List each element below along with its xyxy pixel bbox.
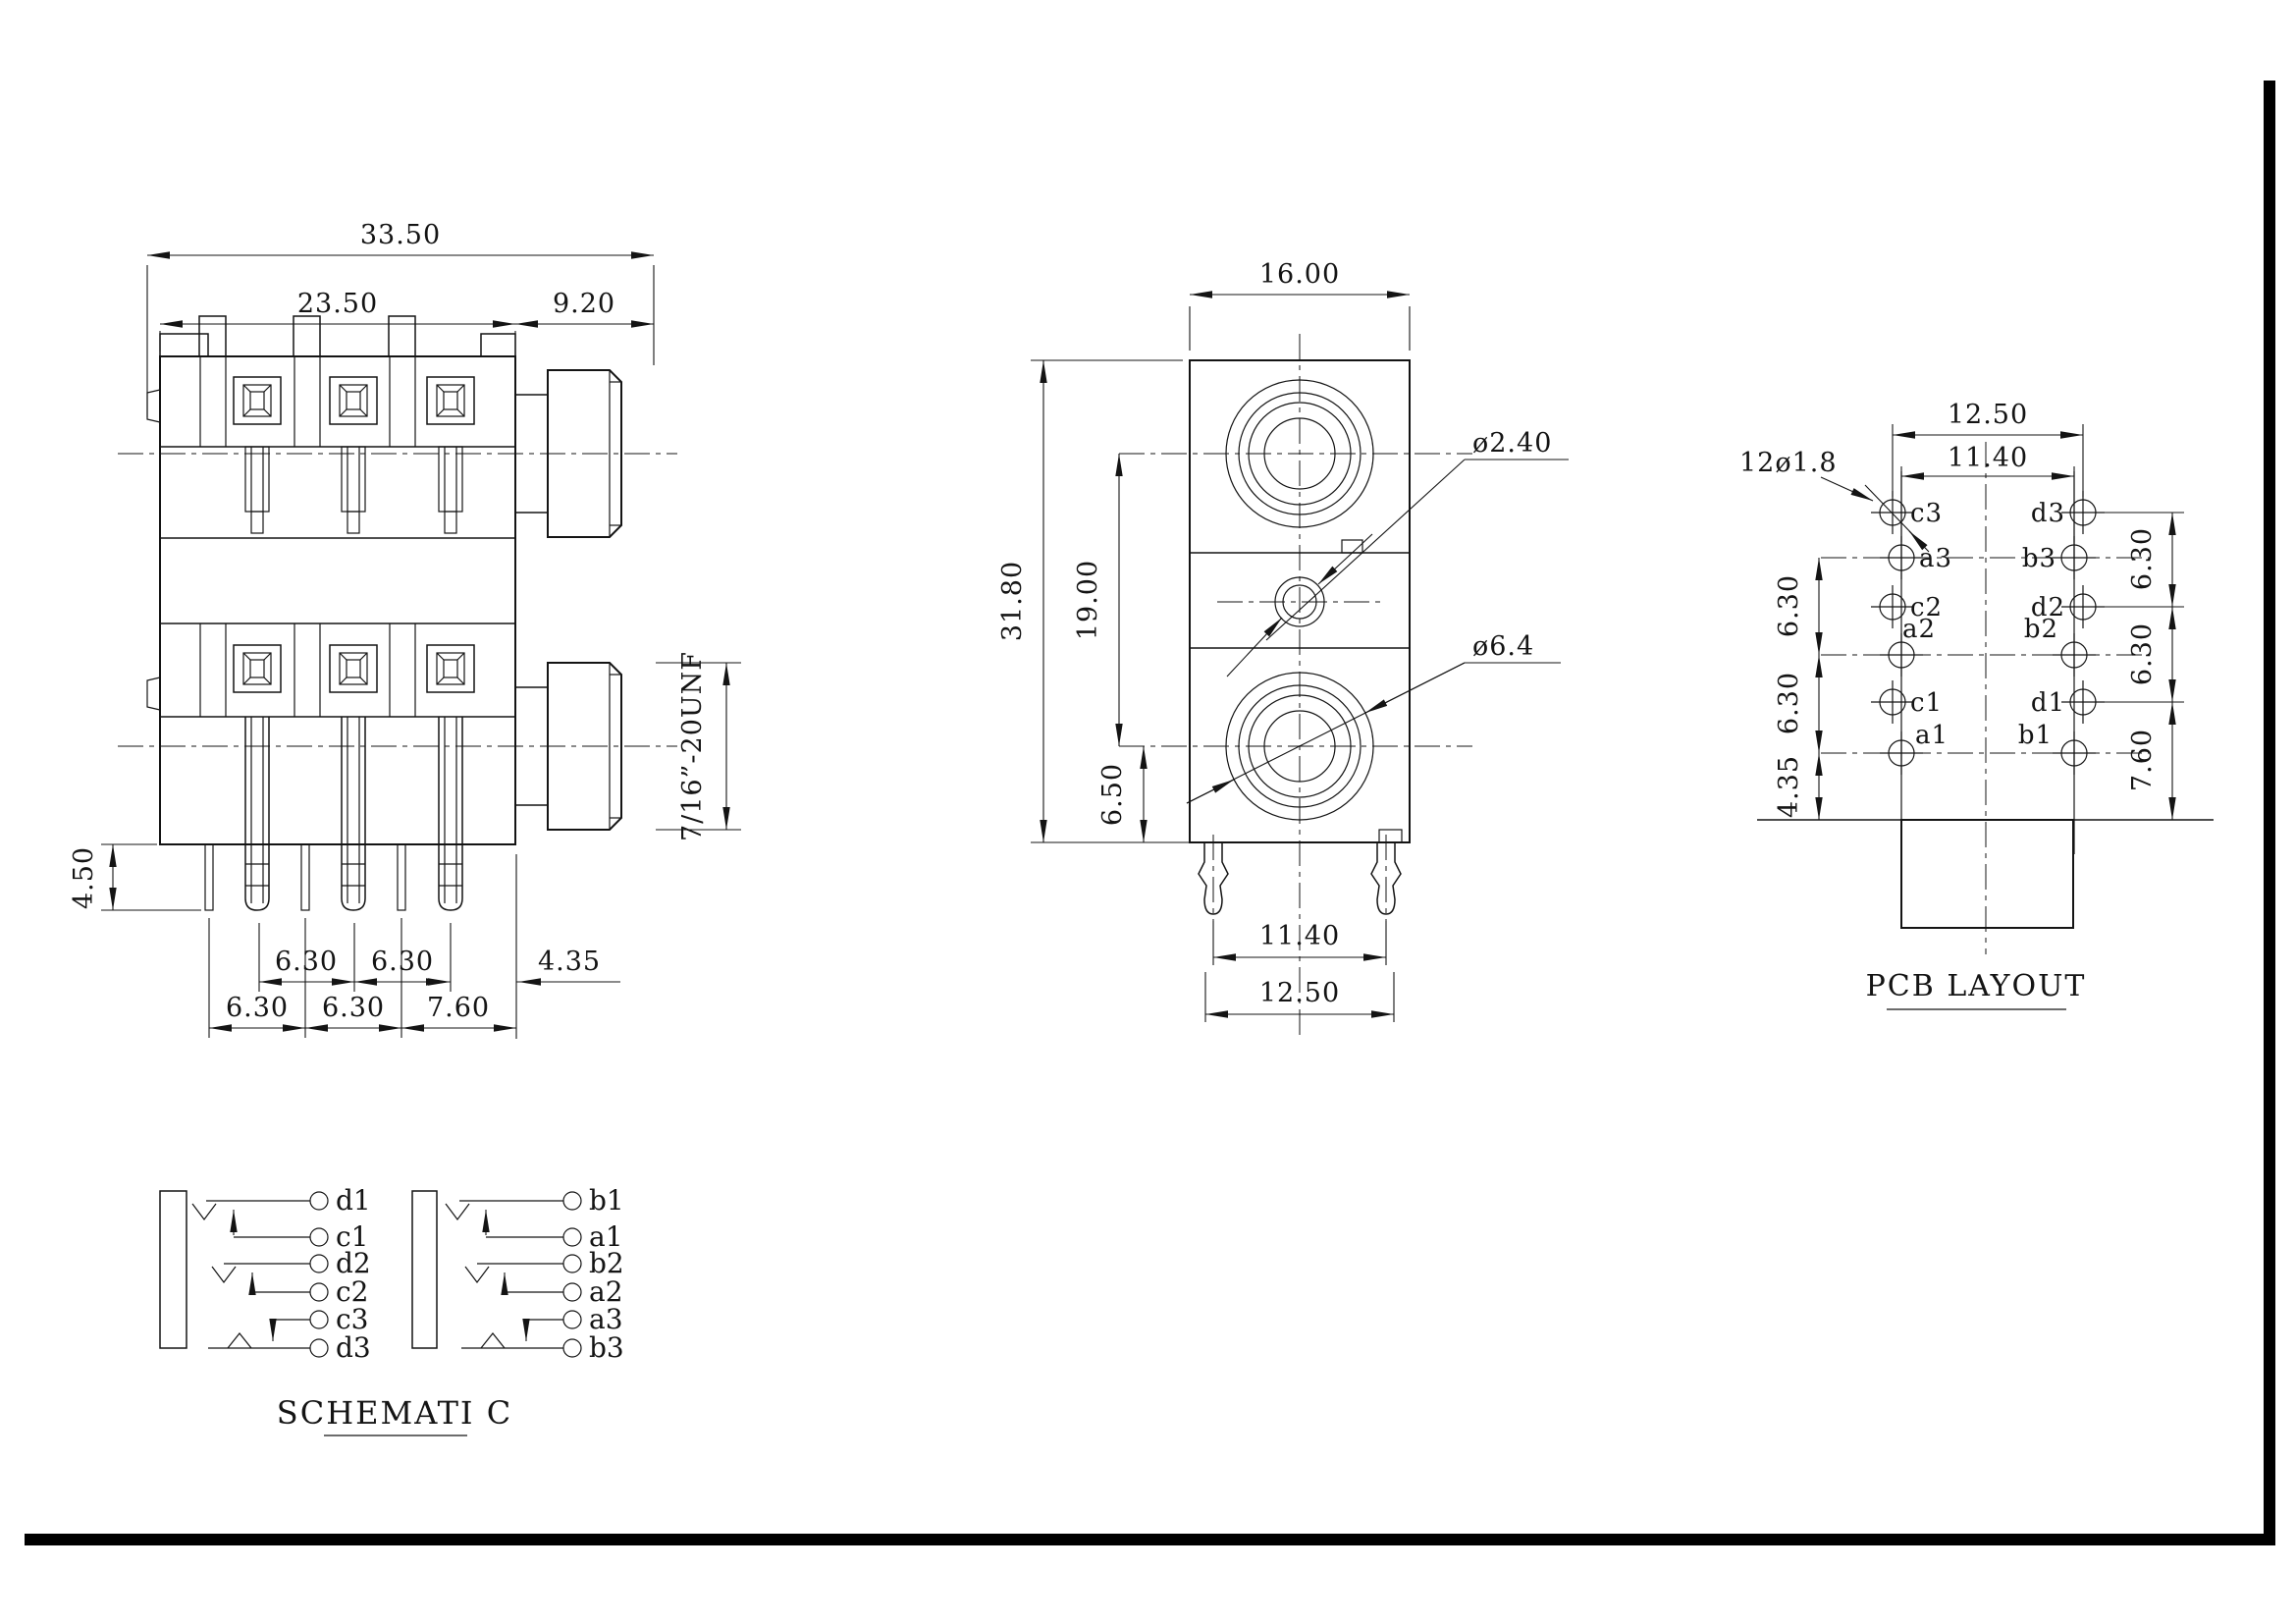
callout-hole-large: ø6.4: [1472, 631, 1534, 662]
pcb-layout-title: PCB LAYOUT: [1866, 969, 2087, 1003]
dim-leg-outer: 12.50: [1259, 978, 1340, 1008]
dim-front-height: 31.80: [997, 561, 1028, 641]
side-view-body: [118, 316, 677, 910]
dim-front-width: 16.00: [1259, 259, 1340, 290]
pad-label-b1: b1: [2018, 721, 2053, 750]
dim-pcb-left-pitch-b: 6.30: [1774, 672, 1804, 734]
dim-overall-width: 33.50: [360, 220, 441, 250]
dim-pcb-right-edge: 7.60: [2127, 729, 2158, 791]
schematic-pin-b1: b1: [589, 1184, 624, 1217]
pcb-title-block: PCB LAYOUT: [1866, 969, 2087, 1009]
dim-lower-center: 6.50: [1097, 763, 1128, 826]
pcb-pads: [1757, 442, 2214, 954]
dim-pcb-inner: 11.40: [1948, 443, 2028, 473]
pad-label-a3: a3: [1919, 544, 1952, 573]
schematic-pin-d1: d1: [336, 1184, 371, 1217]
side-view: 33.50 23.50 9.20 7/16”-20UNF 4.50: [69, 220, 741, 1039]
drawing-sheet: 33.50 23.50 9.20 7/16”-20UNF 4.50: [0, 0, 2296, 1624]
dim-pcb-left-pitch-a: 6.30: [1774, 574, 1804, 637]
dim-thread-spec: 7/16”-20UNF: [677, 651, 708, 841]
pad-label-a1: a1: [1915, 721, 1949, 750]
dim-row2-pitch-b: 6.30: [322, 993, 385, 1023]
engineering-drawing: 33.50 23.50 9.20 7/16”-20UNF 4.50: [0, 0, 2296, 1624]
front-view: 16.00 31.80 19.00 6.50 ø2.40 ø6.4: [997, 259, 1569, 1041]
dim-bushing-length: 9.20: [553, 289, 615, 319]
dim-row1-edge: 4.35: [538, 947, 601, 977]
schematic-left-jack: d1 c1 d2 c2 c3 d3: [160, 1184, 371, 1364]
dim-pin-length: 4.50: [69, 846, 99, 909]
dim-row1-pitch-b: 6.30: [371, 947, 434, 977]
callout-hole-small: ø2.40: [1472, 428, 1552, 459]
dim-jack-centers: 19.00: [1073, 560, 1103, 640]
front-view-dimensions: 16.00 31.80 19.00 6.50 ø2.40 ø6.4: [997, 259, 1569, 1022]
pad-label-d1: d1: [2031, 688, 2065, 718]
dim-pcb-left-edge: 4.35: [1774, 755, 1804, 818]
pad-label-b2: b2: [2024, 615, 2058, 644]
pad-label-d3: d3: [2031, 499, 2065, 528]
note-hole-count: 12ø1.8: [1739, 448, 1838, 478]
side-view-dimensions: 33.50 23.50 9.20 7/16”-20UNF 4.50: [69, 220, 741, 1039]
schematic-title: SCHEMATI C: [277, 1394, 512, 1432]
schematic-right-jack: b1 a1 b2 a2 a3 b3: [412, 1184, 624, 1364]
dim-leg-span: 11.40: [1259, 921, 1340, 951]
schematic-title-block: SCHEMATI C: [277, 1394, 512, 1435]
dim-pcb-outer: 12.50: [1948, 400, 2028, 430]
schematic-pin-b3: b3: [589, 1331, 624, 1364]
pad-label-a2: a2: [1902, 615, 1936, 644]
schematic-view: d1 c1 d2 c2 c3 d3 b1: [160, 1184, 624, 1435]
pad-label-b3: b3: [2022, 544, 2056, 573]
dim-row1-pitch-a: 6.30: [275, 947, 338, 977]
dim-pcb-right-pitch-b: 6.30: [2127, 623, 2158, 685]
pad-label-c1: c1: [1910, 688, 1943, 718]
dim-row2-edge: 7.60: [427, 993, 490, 1023]
dim-row2-pitch-a: 6.30: [226, 993, 289, 1023]
dim-body-width: 23.50: [297, 289, 378, 319]
pcb-pad-labels: c3 a3 c2 a2 c1 a1 d3 b3 d2 b2 d1 b1: [1902, 499, 2065, 750]
dim-pcb-right-pitch-a: 6.30: [2127, 527, 2158, 590]
pcb-dimensions: 12.50 11.40 12ø1.8 6.30 6.30 4.35 6: [1739, 400, 2184, 820]
schematic-pin-d3: d3: [336, 1331, 371, 1364]
pad-label-c3: c3: [1910, 499, 1943, 528]
pcb-layout-view: c3 a3 c2 a2 c1 a1 d3 b3 d2 b2 d1 b1 12.5…: [1739, 400, 2214, 1009]
